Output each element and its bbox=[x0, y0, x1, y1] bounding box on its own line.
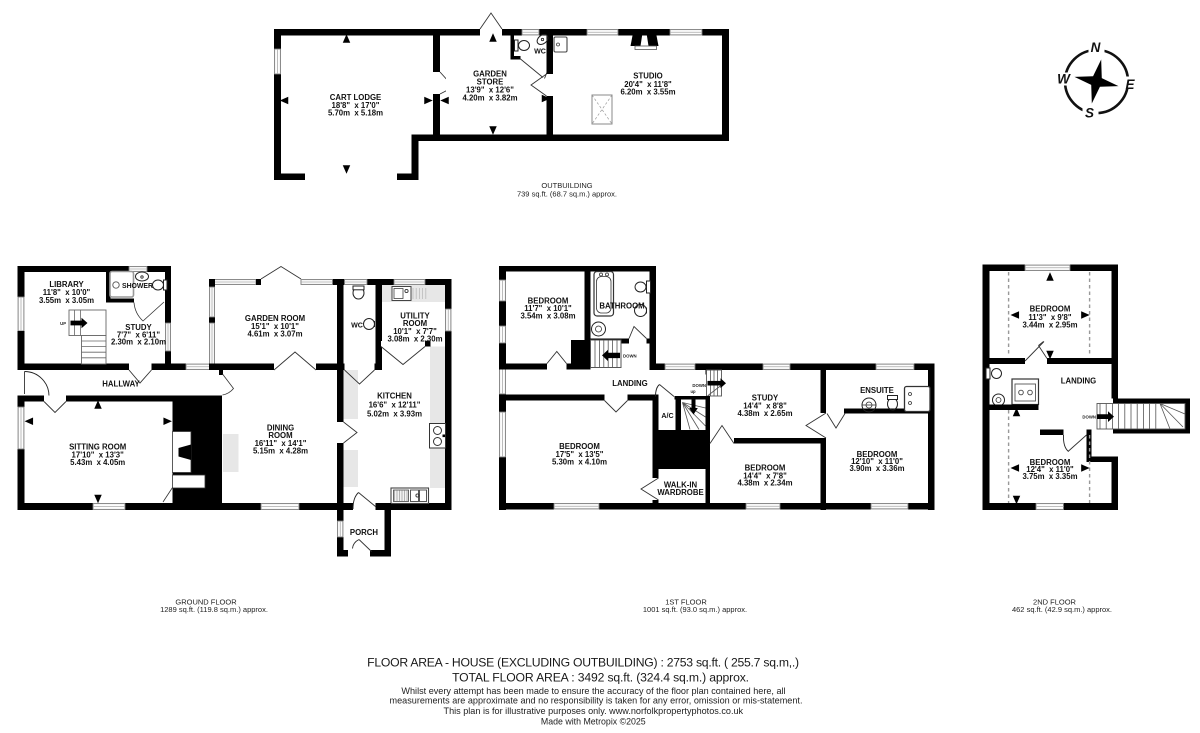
svg-text:HALLWAY: HALLWAY bbox=[102, 379, 140, 388]
svg-text:WARDROBE: WARDROBE bbox=[657, 488, 703, 497]
svg-text:WC: WC bbox=[351, 322, 363, 330]
svg-text:3.90m x 3.36m: 3.90m x 3.36m bbox=[849, 464, 904, 473]
svg-text:up: up bbox=[690, 389, 696, 394]
svg-text:4.38m x 2.34m: 4.38m x 2.34m bbox=[737, 479, 792, 488]
svg-text:4.38m x 2.65m: 4.38m x 2.65m bbox=[737, 409, 792, 418]
svg-text:3.08m x 2.30m: 3.08m x 2.30m bbox=[387, 335, 442, 344]
svg-text:Whilst every attempt has been: Whilst every attempt has been made to en… bbox=[401, 686, 785, 696]
svg-text:TOTAL FLOOR AREA : 3492 sq.ft.: TOTAL FLOOR AREA : 3492 sq.ft. (324.4 sq… bbox=[452, 671, 749, 685]
svg-text:S: S bbox=[1085, 106, 1094, 121]
svg-text:DOWN: DOWN bbox=[623, 354, 637, 359]
svg-text:1001 sq.ft. (93.0 sq.m.) appro: 1001 sq.ft. (93.0 sq.m.) approx. bbox=[643, 605, 747, 614]
svg-text:measurements are approximate a: measurements are approximate and no resp… bbox=[390, 696, 803, 706]
svg-text:DOWN: DOWN bbox=[1082, 415, 1096, 420]
svg-text:LANDING: LANDING bbox=[612, 379, 648, 388]
svg-text:BATHROOM: BATHROOM bbox=[599, 302, 644, 311]
svg-text:ENSUITE: ENSUITE bbox=[860, 386, 894, 395]
svg-text:5.43m x 4.05m: 5.43m x 4.05m bbox=[70, 458, 125, 467]
svg-text:UP: UP bbox=[60, 321, 66, 326]
svg-text:4.61m x 3.07m: 4.61m x 3.07m bbox=[247, 329, 302, 338]
svg-text:KITCHEN: KITCHEN bbox=[377, 392, 412, 401]
svg-text:5.30m x 4.10m: 5.30m x 4.10m bbox=[552, 458, 607, 467]
svg-text:6.20m x 3.55m: 6.20m x 3.55m bbox=[620, 88, 675, 97]
svg-text:3.55m x 3.05m: 3.55m x 3.05m bbox=[39, 296, 94, 305]
svg-text:A/C: A/C bbox=[661, 412, 673, 420]
svg-text:PORCH: PORCH bbox=[350, 528, 379, 537]
svg-text:SHOWER: SHOWER bbox=[122, 283, 153, 290]
svg-text:DOWN: DOWN bbox=[692, 383, 706, 388]
svg-text:462 sq.ft. (42.9 sq.m.) approx: 462 sq.ft. (42.9 sq.m.) approx. bbox=[1012, 605, 1112, 614]
svg-text:5.15m x 4.28m: 5.15m x 4.28m bbox=[253, 447, 308, 456]
svg-text:4.20m x 3.82m: 4.20m x 3.82m bbox=[462, 94, 517, 103]
svg-text:LANDING: LANDING bbox=[1061, 377, 1097, 386]
svg-text:2.30m x 2.10m: 2.30m x 2.10m bbox=[111, 338, 166, 347]
svg-text:W: W bbox=[1057, 72, 1071, 87]
svg-text:3.75m x 3.35m: 3.75m x 3.35m bbox=[1022, 472, 1077, 481]
svg-text:WC: WC bbox=[534, 48, 546, 56]
svg-text:3.44m x 2.95m: 3.44m x 2.95m bbox=[1022, 320, 1077, 329]
svg-text:5.02m x 3.93m: 5.02m x 3.93m bbox=[367, 409, 422, 418]
svg-text:This plan is for illustrative: This plan is for illustrative purposes o… bbox=[444, 706, 744, 716]
svg-text:FLOOR AREA - HOUSE (EXCLUDING: FLOOR AREA - HOUSE (EXCLUDING OUTBUILDIN… bbox=[367, 656, 799, 670]
svg-text:739 sq.ft. (68.7 sq.m.) approx: 739 sq.ft. (68.7 sq.m.) approx. bbox=[517, 190, 617, 199]
svg-text:E: E bbox=[1125, 77, 1135, 92]
svg-text:1289 sq.ft. (119.8 sq.m.) appr: 1289 sq.ft. (119.8 sq.m.) approx. bbox=[160, 605, 268, 614]
svg-text:3.54m x 3.08m: 3.54m x 3.08m bbox=[520, 312, 575, 321]
svg-text:N: N bbox=[1091, 40, 1101, 55]
svg-text:Made with Metropix ©2025: Made with Metropix ©2025 bbox=[541, 717, 646, 727]
svg-text:16'6" x 12'11": 16'6" x 12'11" bbox=[369, 400, 421, 409]
svg-text:5.70m x 5.18m: 5.70m x 5.18m bbox=[328, 109, 383, 118]
